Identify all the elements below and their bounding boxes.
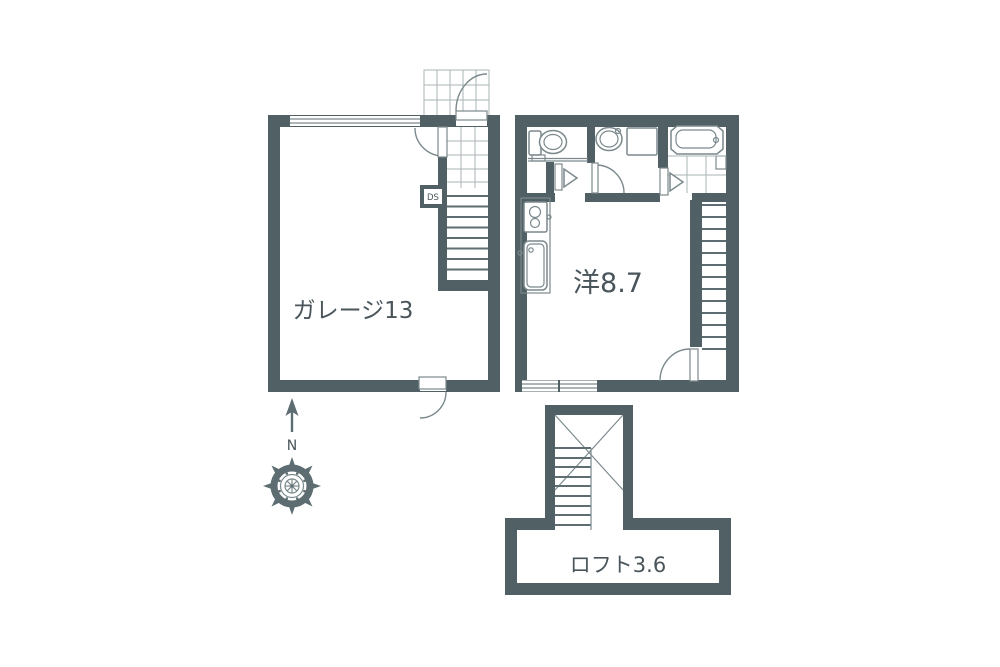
western-room-label: 洋8.7 bbox=[573, 268, 643, 299]
loft-section: ロフト3.6 bbox=[505, 405, 731, 595]
loft-room-label: ロフト3.6 bbox=[570, 553, 666, 577]
ship-wheel-icon bbox=[263, 457, 321, 515]
entry-tiles bbox=[447, 127, 488, 188]
loft-stairs-icon bbox=[555, 415, 623, 530]
garage-walls bbox=[268, 115, 500, 392]
stove-icon bbox=[524, 202, 551, 232]
garage-inner-door-swing-icon bbox=[415, 127, 447, 157]
garage-unit: DS ガレージ13 bbox=[268, 70, 500, 418]
duct-space-box: DS bbox=[420, 185, 446, 208]
main-room-window-icon bbox=[522, 380, 597, 392]
bathroom-folding-door-icon bbox=[660, 168, 683, 195]
washing-machine-pan-icon bbox=[627, 128, 657, 155]
bathtub-icon bbox=[671, 126, 726, 169]
entry-stairs-icon bbox=[447, 196, 488, 270]
main-unit: 洋8.7 bbox=[515, 115, 739, 392]
toilet-icon bbox=[528, 131, 588, 162]
floor-plan-page: DS ガレージ13 bbox=[0, 0, 1000, 667]
compass-rose-icon: N bbox=[263, 398, 321, 515]
toilet-folding-door-icon bbox=[555, 164, 577, 190]
compass-north-label: N bbox=[287, 438, 297, 454]
stairs-icon bbox=[702, 205, 726, 349]
garage-room-label: ガレージ13 bbox=[293, 298, 414, 324]
north-arrow-icon bbox=[286, 398, 299, 432]
floor-plan-drawing: DS ガレージ13 bbox=[0, 0, 1000, 667]
garage-exit-door-swing-icon bbox=[419, 377, 446, 418]
duct-space-label: DS bbox=[427, 193, 439, 203]
washbasin-icon bbox=[596, 128, 622, 151]
washroom-door-swing-icon bbox=[592, 163, 624, 193]
bathroom-floor-tiles bbox=[668, 156, 726, 193]
garage-window-icon bbox=[290, 116, 420, 126]
stairs-door-swing-icon bbox=[660, 349, 698, 381]
